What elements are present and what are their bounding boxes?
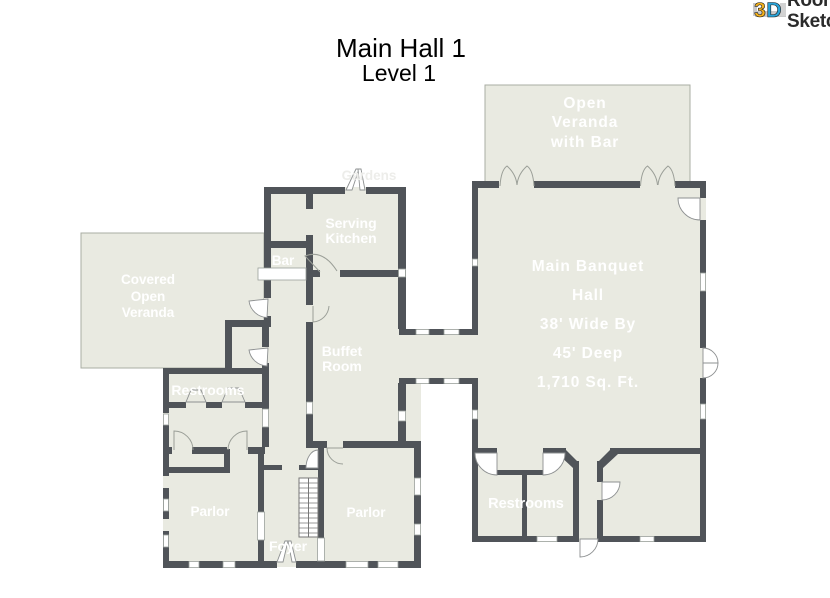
svg-text:Foyer: Foyer [269,538,308,554]
svg-text:38' Wide By: 38' Wide By [540,316,636,333]
svg-text:with Bar: with Bar [550,134,619,151]
svg-text:Kitchen: Kitchen [325,230,376,246]
svg-text:Gardens: Gardens [342,168,397,183]
svg-text:Level 1: Level 1 [362,60,436,86]
svg-text:Parlor: Parlor [190,504,230,519]
svg-text:Main Banquet: Main Banquet [532,258,644,275]
svg-text:Restrooms: Restrooms [171,382,244,398]
svg-text:Main Hall 1: Main Hall 1 [336,33,466,63]
svg-text:Buffet: Buffet [322,343,363,359]
svg-text:Open: Open [131,289,166,304]
svg-text:Restrooms: Restrooms [488,496,564,512]
svg-text:Covered: Covered [121,272,175,287]
svg-text:45' Deep: 45' Deep [553,345,623,362]
svg-text:Sketcher: Sketcher [787,11,830,32]
svg-text:3: 3 [754,0,766,22]
svg-text:Room: Room [322,358,362,374]
svg-text:D: D [766,0,781,22]
svg-text:Veranda: Veranda [552,114,619,131]
svg-text:Hall: Hall [572,287,604,304]
svg-text:Serving: Serving [325,215,376,231]
svg-text:Bar: Bar [272,253,295,268]
svg-text:Veranda: Veranda [122,305,175,320]
svg-text:Parlor: Parlor [346,505,386,520]
svg-text:Open: Open [563,95,606,112]
svg-text:Room: Room [787,0,830,11]
svg-text:1,710 Sq. Ft.: 1,710 Sq. Ft. [537,374,639,391]
